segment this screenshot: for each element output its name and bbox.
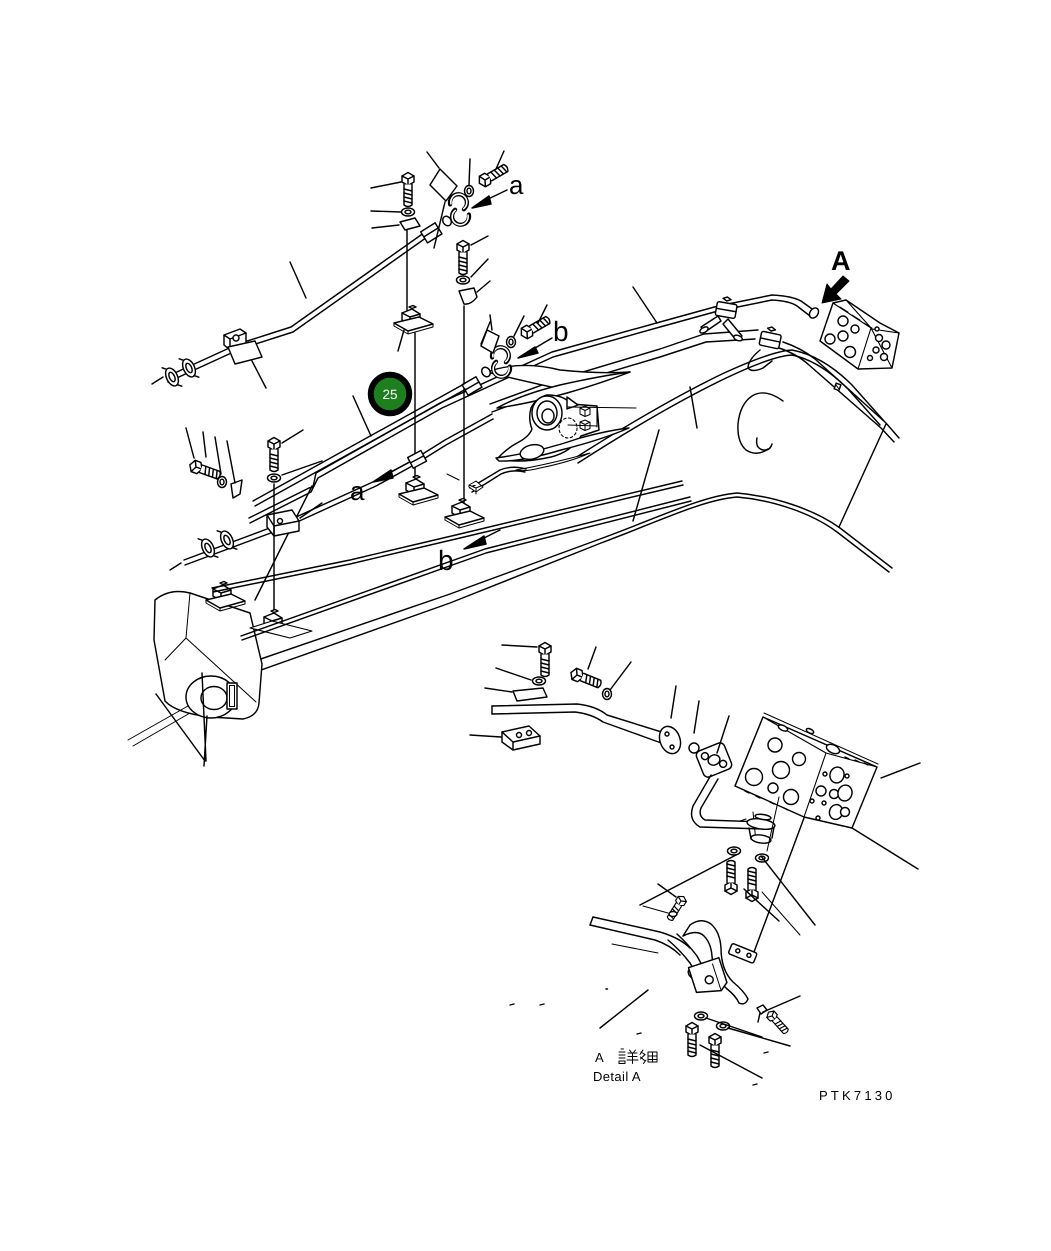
svg-text:A: A (831, 246, 851, 276)
svg-text:a: a (509, 170, 524, 200)
svg-text:a: a (350, 476, 365, 506)
svg-text:PTK7130: PTK7130 (819, 1088, 896, 1103)
svg-text:A: A (595, 1050, 604, 1065)
svg-text:Detail A: Detail A (593, 1069, 641, 1084)
svg-text:25: 25 (382, 387, 397, 402)
svg-text:b: b (553, 316, 569, 347)
